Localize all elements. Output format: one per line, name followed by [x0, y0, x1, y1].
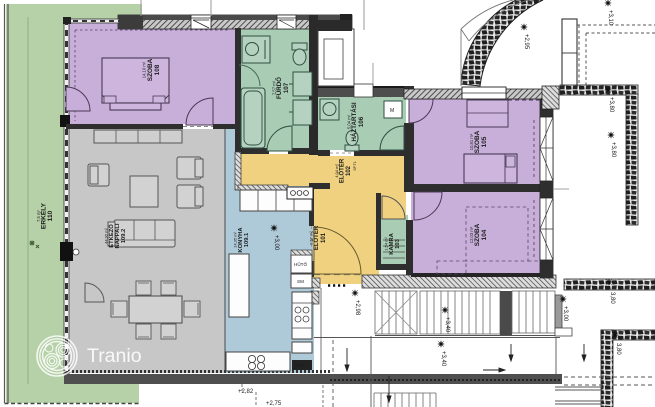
- svg-text:Tranio: Tranio: [87, 345, 142, 367]
- svg-text:+2,98: +2,98: [354, 300, 360, 316]
- svg-text:+3,40: +3,40: [444, 317, 450, 333]
- svg-text:14,10 m²: 14,10 m²: [142, 61, 147, 78]
- svg-text:3,80: 3,80: [615, 343, 621, 355]
- svg-text:HÁZTARTÁSI: HÁZTARTÁSI: [351, 102, 358, 141]
- svg-text:109.2: 109.2: [121, 229, 127, 244]
- svg-text:108: 108: [154, 64, 161, 75]
- svg-text:+3,80: +3,80: [610, 142, 616, 158]
- svg-text:7,57 m²: 7,57 m²: [272, 80, 277, 95]
- svg-text:FÜRDŐ: FÜRDŐ: [276, 77, 283, 99]
- svg-text:M: M: [390, 108, 394, 114]
- svg-text:+3,10: +3,10: [607, 10, 613, 26]
- svg-text:SZOBA: SZOBA: [474, 223, 481, 246]
- svg-text:110: 110: [47, 210, 54, 221]
- svg-text:101: 101: [321, 232, 327, 243]
- svg-text:105: 105: [481, 136, 488, 147]
- svg-text:SP.TL: SP.TL: [353, 161, 357, 171]
- svg-text:+2,75: +2,75: [266, 401, 282, 407]
- svg-text:3,80: 3,80: [609, 292, 615, 304]
- svg-text:+3,00: +3,00: [562, 306, 568, 322]
- svg-text:+2,95: +2,95: [523, 34, 529, 50]
- svg-text:109.1: 109.1: [244, 232, 250, 247]
- svg-text:106: 106: [358, 116, 365, 127]
- svg-text:5,04 m²: 5,04 m²: [347, 114, 352, 129]
- svg-text:14,35 m²: 14,35 m²: [233, 231, 238, 247]
- svg-text:NAPPALI: NAPPALI: [115, 223, 121, 248]
- svg-text:7,5 m²: 7,5 m²: [36, 209, 41, 221]
- svg-text:SM: SM: [297, 279, 304, 284]
- svg-text:103: 103: [395, 238, 401, 248]
- svg-text:+3,40: +3,40: [440, 351, 446, 367]
- svg-text:4,04 m²: 4,04 m²: [334, 164, 339, 178]
- svg-text:SZOBA: SZOBA: [474, 130, 481, 153]
- svg-text:104: 104: [481, 229, 488, 240]
- svg-text:KAMRA: KAMRA: [389, 232, 395, 254]
- svg-text:107: 107: [283, 82, 290, 93]
- svg-text:8,67 m²: 8,67 m²: [309, 231, 314, 245]
- svg-text:+2,82: +2,82: [238, 389, 254, 395]
- svg-text:SZOBA: SZOBA: [147, 58, 154, 81]
- svg-text:+3,80: +3,80: [608, 97, 614, 113]
- svg-text:10,81 m²: 10,81 m²: [469, 133, 474, 150]
- svg-text:44,95 m²: 44,95 m²: [104, 227, 109, 243]
- svg-text:1,54 m²: 1,54 m²: [384, 237, 389, 251]
- svg-text:+3,00: +3,00: [273, 235, 279, 251]
- svg-text:1SM: 1SM: [294, 363, 303, 368]
- svg-text:HŰTŐ: HŰTŐ: [294, 261, 307, 267]
- svg-text:102: 102: [346, 165, 352, 176]
- svg-text:12,03 m²: 12,03 m²: [469, 226, 474, 243]
- svg-text:KONYHA: KONYHA: [238, 227, 244, 253]
